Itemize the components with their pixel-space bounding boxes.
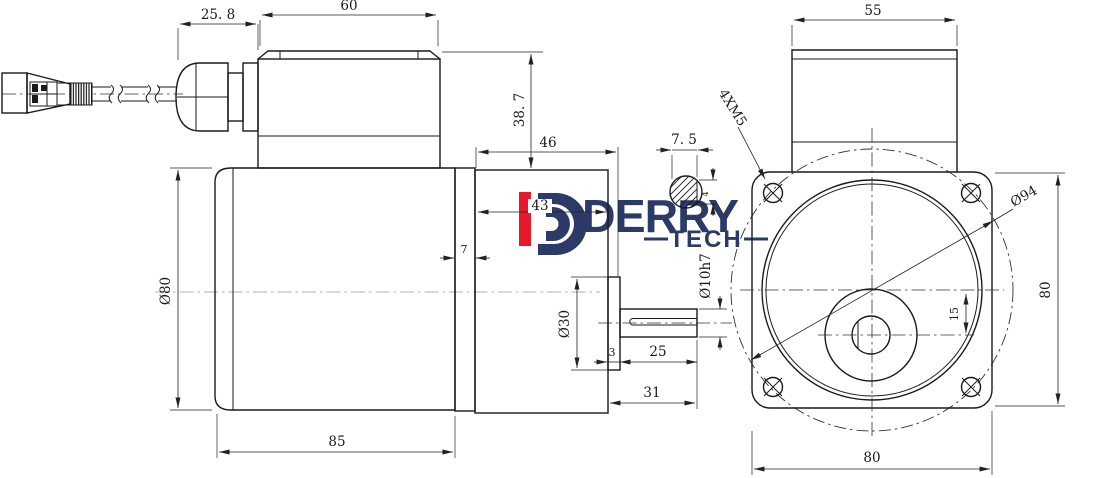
dim-boss-diameter: Ø30 (557, 310, 573, 338)
logo-subtitle: TECH (669, 226, 742, 253)
strain-relief-ribs (71, 83, 92, 105)
dim-front-box-width: 55 (864, 3, 881, 19)
dim-shaft-diameter: Ø10h7 (698, 253, 714, 299)
dim-box-width: 60 (340, 0, 357, 14)
dim-motor-length: 85 (328, 434, 345, 450)
dim-gearbox-total: 46 (539, 135, 556, 151)
dim-gearbox-housing: 43 (531, 198, 548, 214)
drawing-canvas: DERRY TECH (0, 0, 1094, 478)
dim-shaft-offset: 15 (948, 307, 961, 321)
dim-shaft-usable: 25 (649, 344, 666, 360)
technical-drawing: DERRY TECH (0, 0, 1094, 478)
dim-flange-width: 80 (863, 450, 880, 466)
dim-motor-diameter: Ø80 (158, 277, 174, 305)
dim-boss-protrusion: 3 (609, 346, 616, 359)
dim-flat-chord: 4 (701, 191, 710, 196)
dim-gland-length: 25. 8 (201, 7, 235, 23)
dim-shaft-total: 31 (643, 385, 660, 401)
dim-ring-width: 7 (461, 243, 468, 256)
dim-box-height: 38. 7 (512, 93, 528, 127)
dim-flat-width: 7. 5 (671, 132, 697, 148)
dim-flange-height: 80 (1038, 281, 1054, 298)
